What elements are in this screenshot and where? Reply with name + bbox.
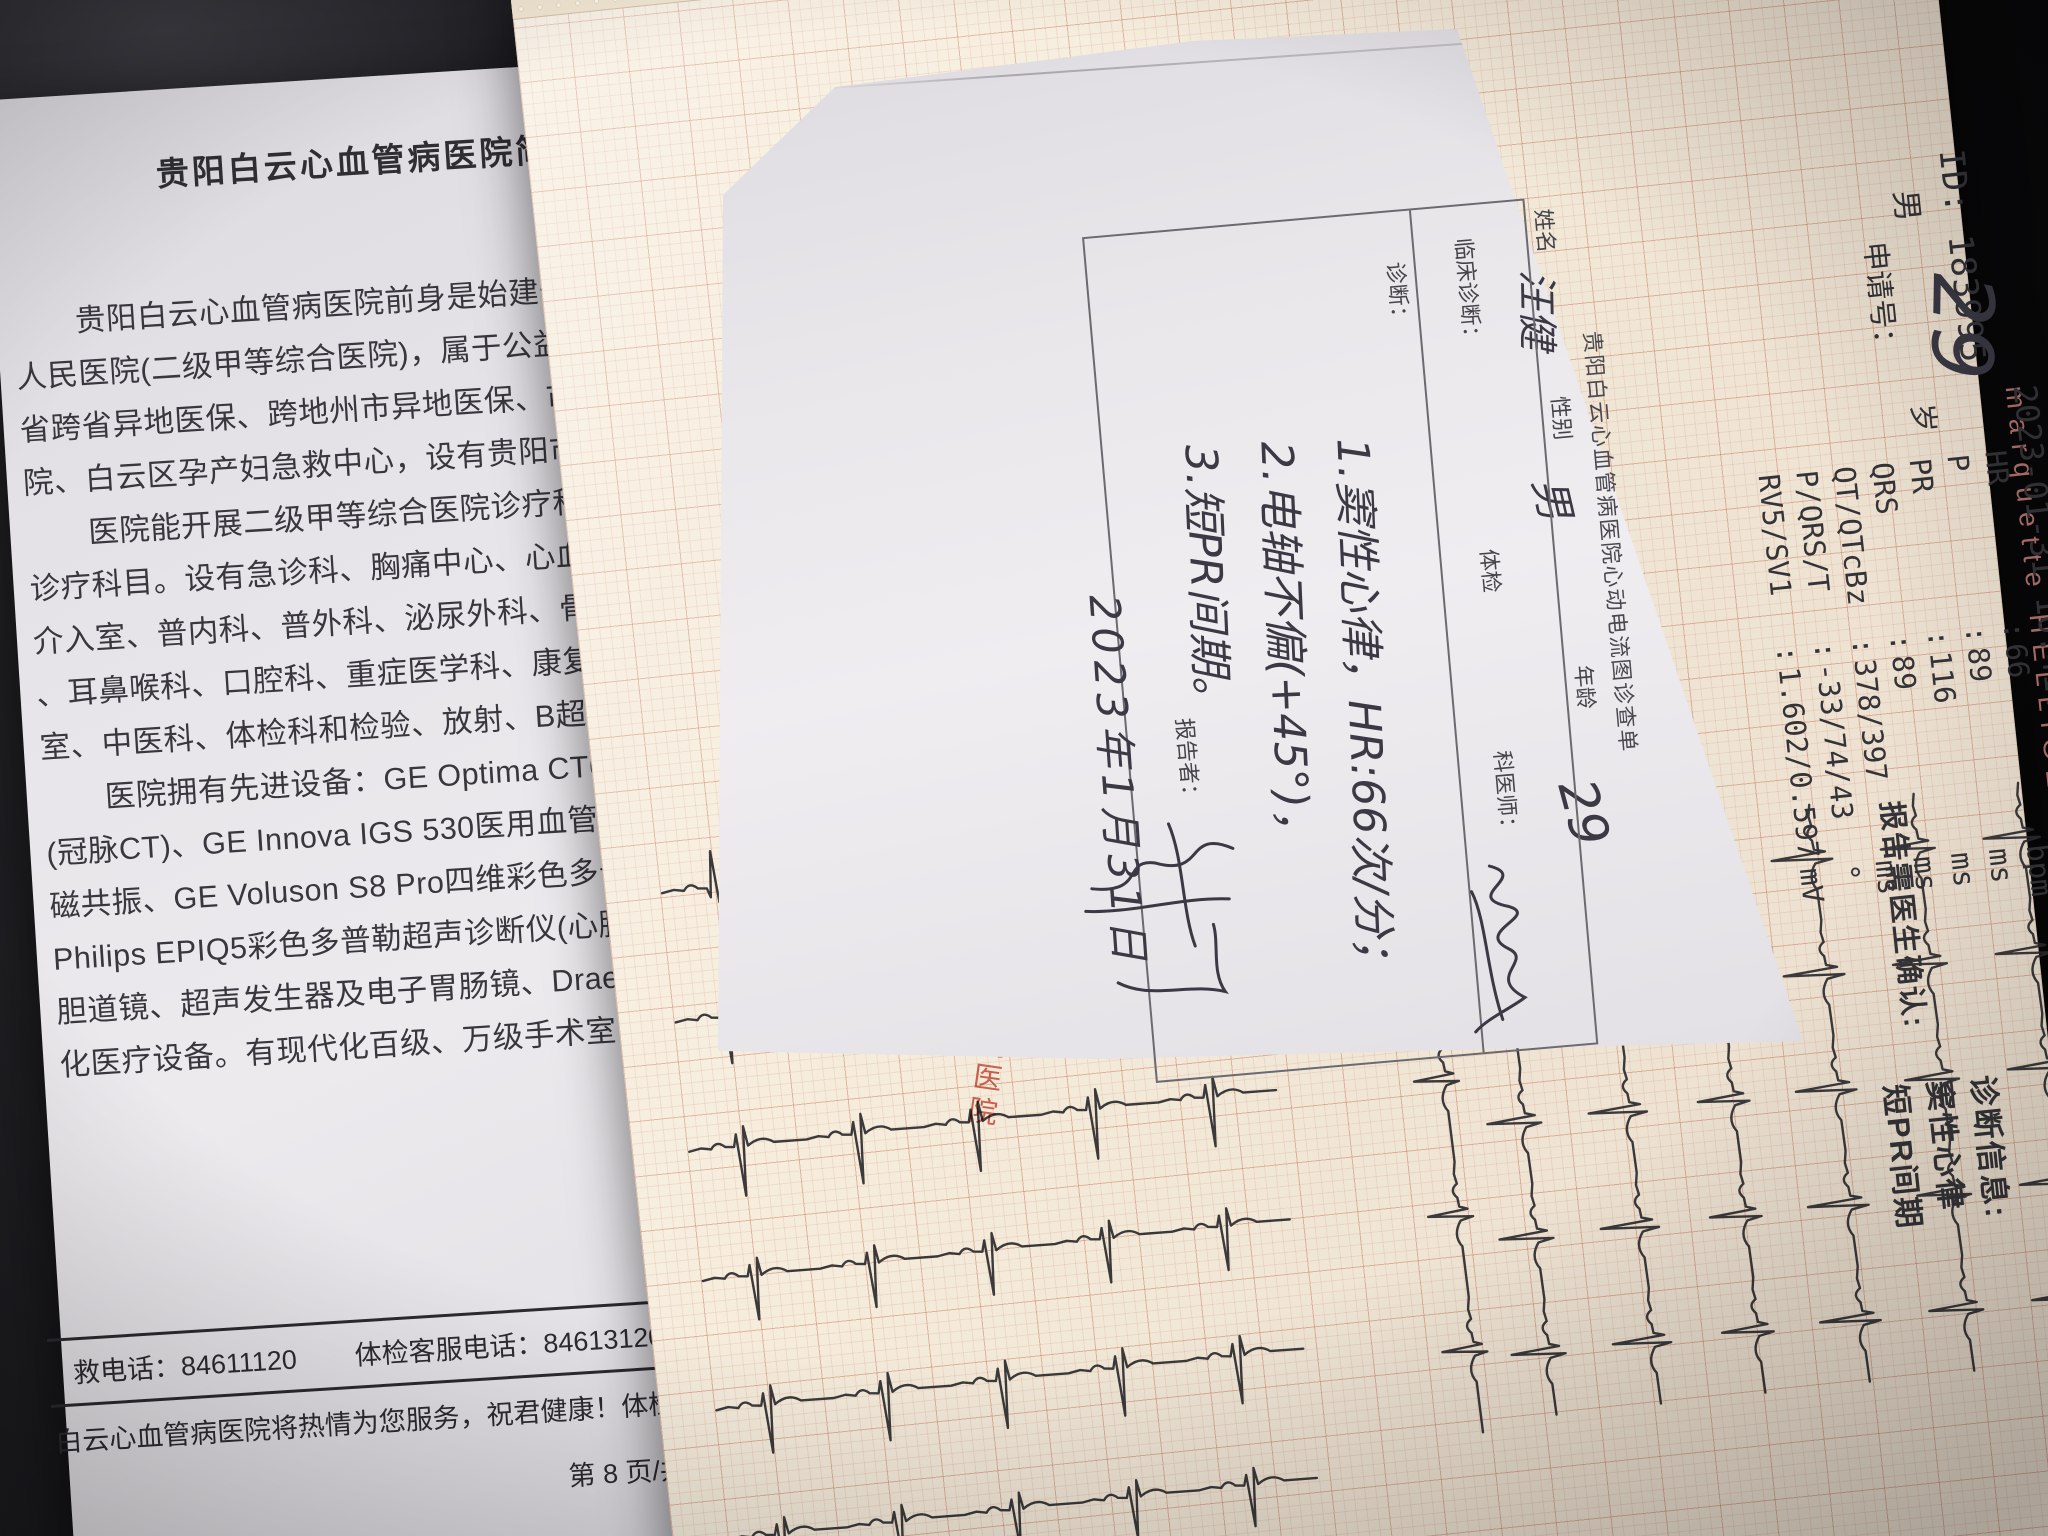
photo-of-medical-documents: 贵阳白云心血管病医院简介 贵阳白云心血管病医院前身是始建于1971年的贵阳市 人…: [0, 0, 2048, 1536]
physician-signature: [1419, 856, 1554, 1046]
checkup-service-phone: 体检客服电话：84613120: [353, 1314, 664, 1372]
rescue-phone: 救电话：84611120: [72, 1337, 298, 1390]
gender-label: 性别: [1545, 395, 1581, 442]
age-label: 年龄: [1568, 664, 1604, 711]
age-unit-label: 岁: [1903, 401, 1948, 434]
ecg-diagnosis-form-content: 贵阳白云心血管病医院心动电流图诊查单 姓名 汪健 性别 男 年龄 29 临床诊断…: [1040, 180, 1676, 1125]
dx-label: 诊断：: [1380, 260, 1418, 329]
handwritten-age: 29: [1912, 272, 2012, 381]
request-number-label: 申请号：: [1856, 239, 1910, 359]
diagnosis-info-block: 诊断信息: 窦性心律 短PR间期: [1872, 1073, 2019, 1232]
checkup-label: 体检: [1474, 547, 1510, 594]
paper-perforation-edge: [510, 0, 1925, 20]
gender-label: 男: [1886, 188, 1934, 224]
name-label: 姓名: [1528, 207, 1564, 254]
